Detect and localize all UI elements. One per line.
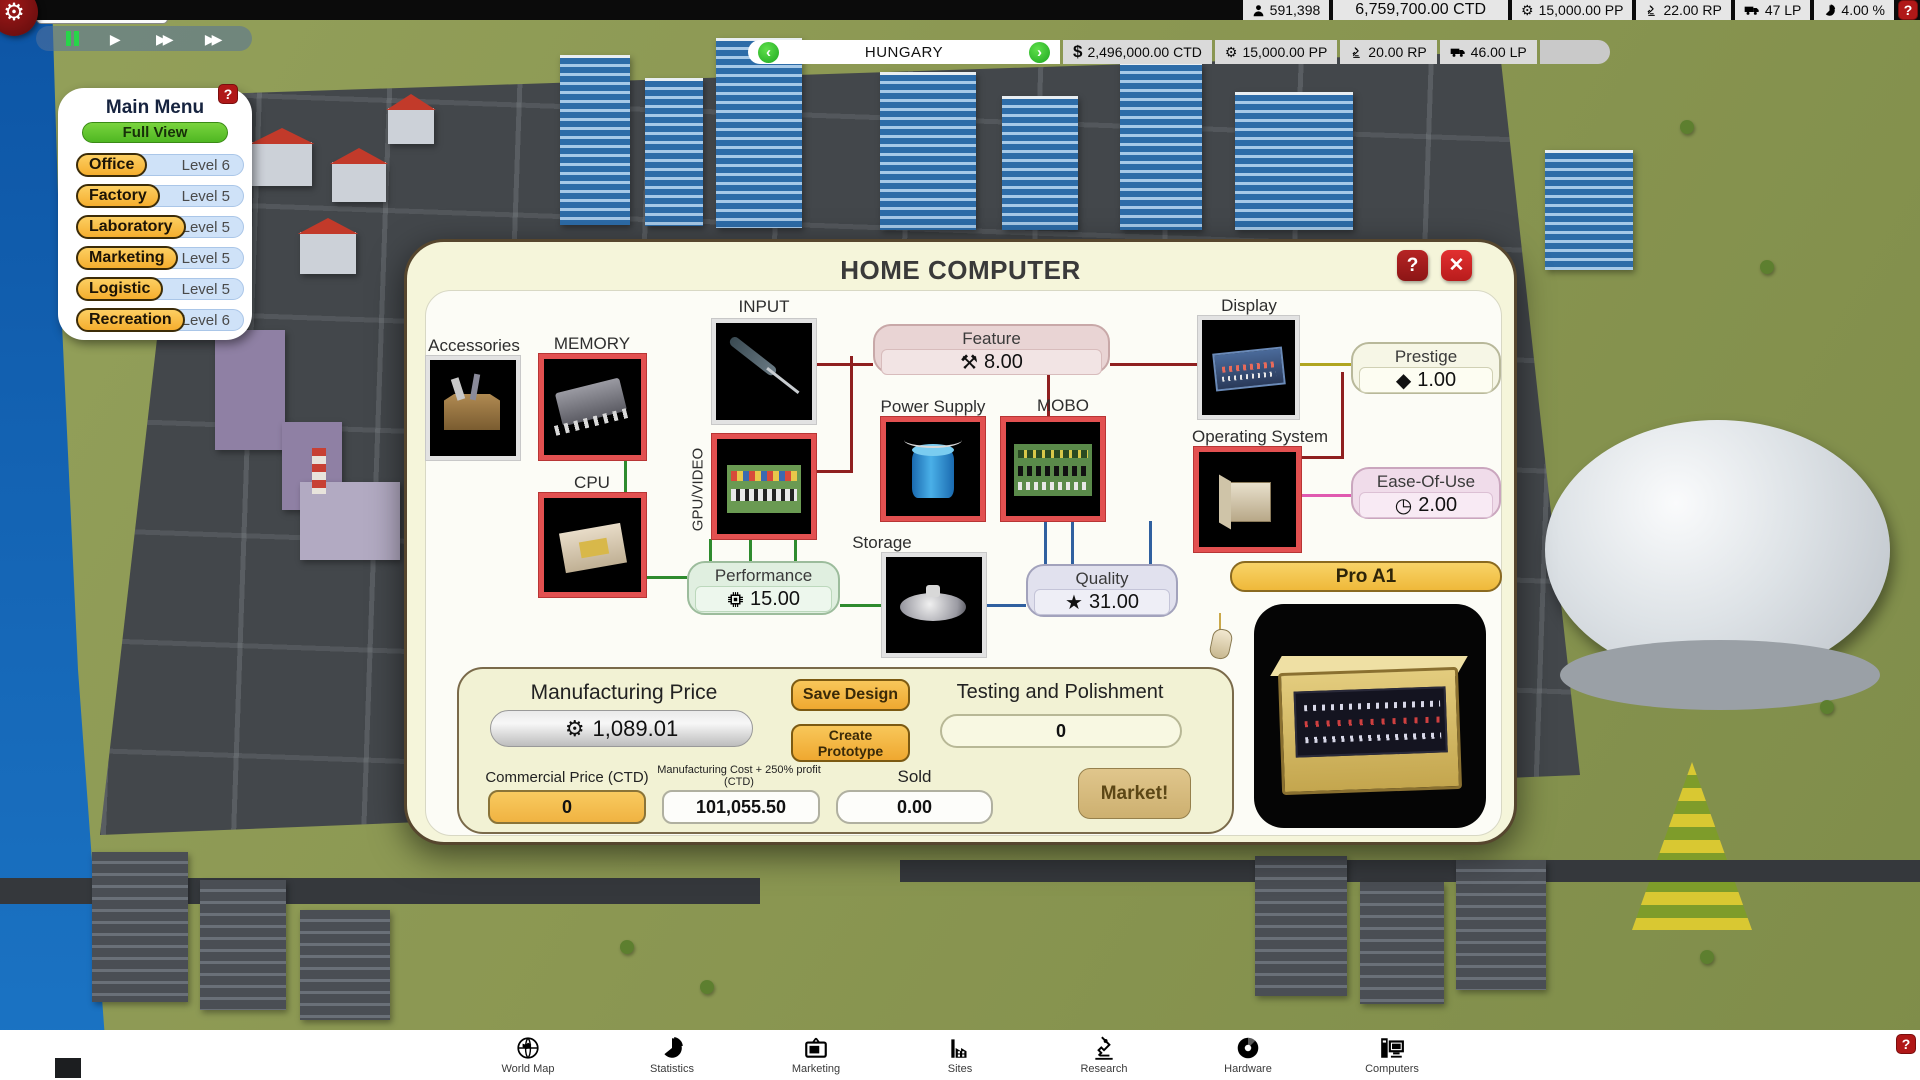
country-name: HUNGARY	[865, 44, 943, 61]
manufacturing-price-label: Manufacturing Price	[499, 681, 749, 705]
apartment	[1360, 882, 1444, 1004]
country-rp-stat: 20.00 RP	[1340, 40, 1436, 64]
truck-icon	[1450, 46, 1466, 58]
create-prototype-button[interactable]: Create Prototype	[791, 724, 910, 762]
connector-line	[816, 363, 873, 366]
star-icon: ★	[1065, 590, 1083, 615]
product-front-panel	[1294, 686, 1448, 757]
level-text: Level 5	[182, 188, 230, 205]
performance-label: Performance	[695, 566, 832, 585]
tab-research[interactable]: Research	[1061, 1035, 1147, 1075]
performance-value: 15.00	[750, 588, 800, 611]
component-cpu[interactable]	[539, 493, 646, 597]
mobo-slots-art	[1018, 466, 1088, 476]
tree	[700, 980, 714, 994]
diamond-icon: ◆	[1396, 368, 1411, 393]
cost-label: Manufacturing Cost + 250% profit (CTD)	[654, 764, 824, 788]
stadium-base	[1560, 640, 1880, 710]
apartment	[300, 910, 390, 1020]
level-text: Level 6	[182, 157, 230, 174]
full-view-button[interactable]: Full View	[82, 122, 228, 143]
pp-value: 15,000.00 PP	[1539, 2, 1624, 18]
dollar-icon: $	[1073, 42, 1082, 62]
toolbar-label: World Map	[502, 1063, 555, 1075]
connector-line	[1110, 363, 1198, 366]
mouse-icon	[1208, 627, 1234, 661]
memory-label: MEMORY	[532, 334, 652, 354]
hardware-icon	[1235, 1035, 1261, 1061]
toolbar-label: Hardware	[1224, 1063, 1272, 1075]
dialog-title: HOME COMPUTER	[407, 255, 1514, 286]
market-button[interactable]: Market!	[1078, 768, 1191, 819]
prestige-badge: Prestige ◆ 1.00	[1351, 342, 1501, 394]
spiral-tower	[1632, 762, 1752, 930]
sidebar-item-laboratory[interactable]: Laboratory	[76, 215, 186, 239]
input-label: INPUT	[704, 297, 824, 317]
sites-icon	[947, 1035, 973, 1061]
product-switches	[1305, 733, 1441, 744]
level-text: Level 5	[182, 281, 230, 298]
os-box-art	[1225, 482, 1271, 522]
toolbar-label: Computers	[1365, 1063, 1419, 1075]
country-lp-stat: 46.00 LP	[1440, 40, 1537, 64]
connector-line	[1341, 372, 1344, 459]
toolbar-label: Statistics	[650, 1063, 694, 1075]
apartment	[1255, 856, 1347, 996]
building	[1545, 150, 1633, 270]
bottom-toolbar: World Map Statistics Marketing Sites Res…	[0, 1030, 1920, 1080]
product-name-badge[interactable]: Pro A1	[1230, 561, 1502, 592]
tree	[1700, 950, 1714, 964]
feature-label: Feature	[881, 329, 1102, 348]
tools-icon: ⚒	[960, 350, 978, 375]
gpu-label: GPU/VIDEO	[690, 430, 707, 550]
power-supply-wire-art	[904, 432, 962, 448]
design-board: Accessories MEMORY INPUT Power Supply MO…	[425, 290, 1502, 836]
clock-icon: ◷	[1395, 493, 1412, 518]
house	[332, 162, 386, 202]
fast-forward-button[interactable]: ▶▶	[156, 32, 174, 46]
main-menu-panel: Main Menu ? Full View Level 6 Office Lev…	[58, 88, 252, 340]
building	[880, 72, 976, 230]
save-design-button[interactable]: Save Design	[791, 679, 910, 711]
tab-world-map[interactable]: World Map	[485, 1035, 571, 1075]
cpu-label: CPU	[532, 473, 652, 493]
building	[560, 55, 630, 225]
prestige-label: Prestige	[1359, 347, 1493, 366]
connector-line	[1301, 456, 1344, 459]
tab-marketing[interactable]: Marketing	[773, 1035, 859, 1075]
house	[252, 142, 312, 186]
mobo-slots-art	[1018, 482, 1088, 490]
money-stat: 6,759,700.00 CTD	[1333, 0, 1508, 20]
cost-field: 101,055.50	[662, 790, 820, 824]
top-status-bar: 591,398 6,759,700.00 CTD ⚙ 15,000.00 PP …	[0, 0, 1920, 20]
lp-value: 47 LP	[1765, 2, 1802, 18]
microscope-icon	[1350, 46, 1363, 59]
apartment	[1456, 860, 1546, 990]
os-box-art	[1219, 475, 1231, 530]
connector-line	[986, 604, 1026, 607]
sidebar-item-logistic[interactable]: Logistic	[76, 277, 163, 301]
commercial-price-field[interactable]: 0	[488, 790, 646, 824]
feature-value: 8.00	[984, 351, 1023, 374]
display-label: Display	[1189, 296, 1309, 316]
level-text: Level 5	[182, 219, 230, 236]
connector-line	[1044, 521, 1047, 564]
apartment	[200, 880, 286, 1010]
storage-platter-art	[900, 593, 966, 621]
manufacturing-panel: Manufacturing Price ⚙ 1,089.01 Save Desi…	[457, 667, 1234, 834]
tree	[1760, 260, 1774, 274]
connector-line	[1071, 521, 1074, 564]
quality-value: 31.00	[1089, 591, 1139, 614]
performance-badge: Performance 15.00	[687, 561, 840, 615]
component-mobo[interactable]	[1001, 417, 1105, 521]
tab-statistics[interactable]: Statistics	[629, 1035, 715, 1075]
accessories-label: Accessories	[414, 336, 534, 356]
statistics-icon	[659, 1035, 685, 1061]
tab-sites[interactable]: Sites	[917, 1035, 1003, 1075]
tab-computers[interactable]: Computers	[1349, 1035, 1435, 1075]
gpu-parts-art	[731, 489, 797, 501]
main-menu-help-button[interactable]: ?	[218, 84, 238, 104]
rp-stat: 22.00 RP	[1636, 0, 1730, 20]
next-country-button[interactable]: ›	[1029, 42, 1050, 63]
connector-line	[709, 539, 712, 561]
building	[1120, 62, 1202, 230]
game-screen: 591,398 6,759,700.00 CTD ⚙ 15,000.00 PP …	[0, 0, 1920, 1080]
testing-field[interactable]: 0	[940, 714, 1182, 748]
level-text: Level 6	[182, 312, 230, 329]
gear-icon: ⚙	[1521, 2, 1534, 19]
lp-stat: 47 LP	[1735, 0, 1811, 20]
close-button[interactable]: ✕	[1441, 250, 1472, 281]
connector-line	[1299, 363, 1351, 366]
chimney	[312, 448, 326, 494]
sold-field: 0.00	[836, 790, 993, 824]
population-value: 591,398	[1270, 2, 1321, 18]
testing-label: Testing and Polishment	[910, 681, 1210, 704]
country-bar-tail	[1540, 40, 1610, 64]
tree	[1820, 700, 1834, 714]
building	[1002, 96, 1078, 230]
power-supply-art	[912, 450, 954, 498]
country-rp-value: 20.00 RP	[1368, 44, 1426, 60]
population-icon	[1252, 4, 1265, 17]
ease-of-use-badge: Ease-Of-Use ◷ 2.00	[1351, 467, 1501, 519]
sidebar-item-office[interactable]: Office	[76, 153, 147, 177]
apartment	[92, 852, 188, 1002]
connector-line	[1301, 494, 1351, 497]
house	[300, 232, 356, 274]
screwdriver-shaft-art	[766, 367, 799, 394]
component-gpu[interactable]	[712, 434, 816, 539]
gear-icon: ⚙	[565, 716, 585, 742]
tree	[620, 940, 634, 954]
money-value: 6,759,700.00 CTD	[1355, 1, 1486, 19]
truck-icon	[1744, 4, 1760, 16]
component-power-supply[interactable]	[881, 417, 985, 521]
building	[716, 38, 802, 228]
component-os[interactable]	[1194, 447, 1301, 552]
tree	[1680, 120, 1694, 134]
toolbar-label: Marketing	[792, 1063, 840, 1075]
product-art	[1278, 667, 1462, 795]
building	[1235, 92, 1353, 230]
country-selector: ‹ HUNGARY ›	[748, 40, 1060, 64]
mobo-slots-art	[1018, 450, 1088, 458]
dialog-help-button[interactable]: ?	[1397, 250, 1428, 281]
level-text: Level 5	[182, 250, 230, 267]
fastest-forward-button[interactable]: ▶▶	[205, 32, 223, 46]
connector-line	[840, 604, 882, 607]
storage-label: Storage	[822, 533, 942, 553]
product-image	[1254, 604, 1486, 828]
home-computer-dialog: HOME COMPUTER ? ✕ Accessories	[404, 239, 1517, 845]
sidebar-item-marketing[interactable]: Marketing	[76, 246, 178, 270]
prev-country-button[interactable]: ‹	[758, 42, 779, 63]
quality-badge: Quality ★ 31.00	[1026, 564, 1178, 617]
country-pp-value: 15,000.00 PP	[1242, 44, 1327, 60]
prestige-value: 1.00	[1417, 369, 1456, 392]
percent-value: 4.00 %	[1841, 2, 1885, 18]
manufacturing-price-display: ⚙ 1,089.01	[490, 710, 753, 747]
building	[215, 330, 285, 450]
manufacturing-price-value: 1,089.01	[593, 716, 679, 742]
world-map-icon	[515, 1035, 541, 1061]
country-money-stat: $ 2,496,000.00 CTD	[1063, 40, 1212, 64]
pause-button[interactable]	[66, 31, 79, 46]
commercial-price-label: Commercial Price (CTD)	[467, 769, 667, 786]
help-button-bottom[interactable]: ?	[1896, 1034, 1916, 1054]
product-lights	[1305, 717, 1441, 728]
pie-icon	[1823, 4, 1836, 17]
mobo-label: MOBO	[1003, 396, 1123, 416]
population-stat: 591,398	[1243, 0, 1330, 20]
sold-label: Sold	[836, 767, 993, 787]
component-storage[interactable]	[882, 553, 986, 657]
cost-label-line2: (CTD)	[724, 776, 754, 788]
gear-icon: ⚙	[3, 0, 25, 27]
speed-controls: ▶ ▶▶ ▶▶	[36, 26, 252, 51]
product-lights	[1304, 701, 1440, 712]
connector-line	[850, 356, 853, 472]
component-input[interactable]	[712, 319, 816, 424]
os-label: Operating System	[1192, 427, 1322, 447]
power-supply-label: Power Supply	[873, 397, 993, 417]
country-bar: ‹ HUNGARY › $ 2,496,000.00 CTD ⚙ 15,000.…	[748, 40, 1610, 64]
country-lp-value: 46.00 LP	[1471, 44, 1527, 60]
sidebar-item-recreation[interactable]: Recreation	[76, 308, 185, 332]
building	[645, 78, 703, 226]
quality-label: Quality	[1034, 569, 1170, 588]
connector-line	[816, 470, 853, 473]
pp-stat: ⚙ 15,000.00 PP	[1512, 0, 1632, 20]
component-accessories[interactable]	[426, 356, 520, 460]
connector-line	[749, 539, 752, 561]
country-pp-stat: ⚙ 15,000.00 PP	[1215, 40, 1337, 64]
rp-value: 22.00 RP	[1663, 2, 1721, 18]
ease-label: Ease-Of-Use	[1359, 472, 1493, 491]
ease-value: 2.00	[1418, 494, 1457, 517]
storage-hub-art	[926, 585, 940, 597]
marketing-icon	[803, 1035, 829, 1061]
gear-icon: ⚙	[1225, 44, 1238, 61]
country-money-value: 2,496,000.00 CTD	[1087, 44, 1201, 60]
house	[388, 108, 434, 144]
connector-line	[646, 576, 687, 579]
cost-label-line1: Manufacturing Cost + 250% profit	[657, 764, 821, 776]
toolbar-label: Sites	[948, 1063, 972, 1075]
feature-badge: Feature ⚒ 8.00	[873, 324, 1110, 374]
road	[900, 860, 1920, 882]
connector-line	[1149, 521, 1152, 564]
minimap-corner	[55, 1058, 81, 1078]
toolbar-label: Research	[1080, 1063, 1127, 1075]
tab-hardware[interactable]: Hardware	[1205, 1035, 1291, 1075]
help-button[interactable]: ?	[1898, 0, 1918, 20]
connector-line	[794, 539, 797, 561]
research-icon	[1091, 1035, 1117, 1061]
microscope-icon	[1645, 4, 1658, 17]
gpu-parts-art	[731, 471, 797, 481]
play-button[interactable]: ▶	[110, 32, 125, 46]
sidebar-item-factory[interactable]: Factory	[76, 184, 160, 208]
chip-icon	[727, 591, 744, 608]
component-memory[interactable]	[539, 354, 646, 460]
computers-icon	[1379, 1035, 1405, 1061]
component-display[interactable]	[1198, 316, 1299, 419]
percent-stat: 4.00 %	[1814, 0, 1894, 20]
